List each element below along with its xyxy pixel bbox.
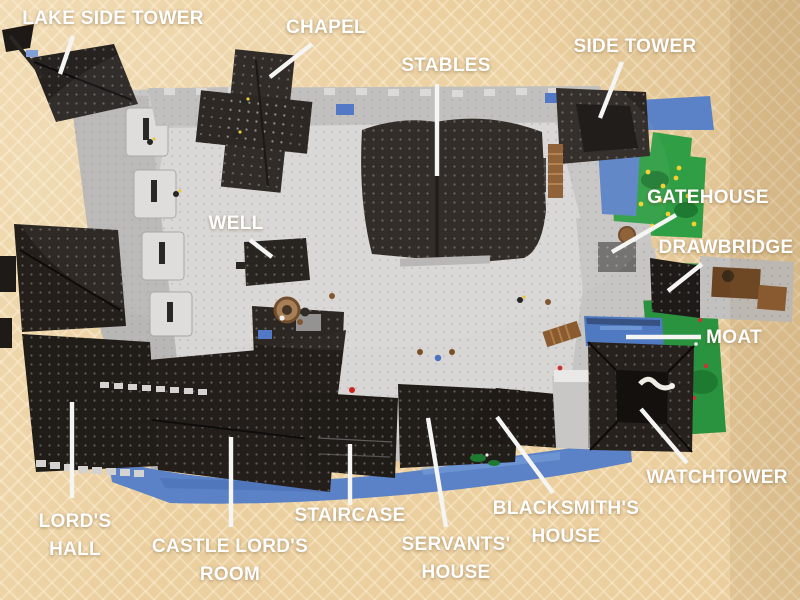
label-side-tower: SIDE TOWER <box>574 33 697 61</box>
label-blacksmiths-house: BLACKSMITH'S HOUSE <box>493 495 639 551</box>
drawbridge-plate <box>650 258 702 318</box>
flash-highlight <box>10 10 670 350</box>
left-edge-piece-2 <box>0 318 12 348</box>
label-stables: STABLES <box>401 52 490 80</box>
label-lake-side-tower: LAKE SIDE TOWER <box>22 5 204 33</box>
label-lords-hall: LORD'S HALL <box>39 508 112 564</box>
left-edge-piece <box>0 256 16 292</box>
label-castle-lords-room: CASTLE LORD'S ROOM <box>152 533 308 589</box>
label-well: WELL <box>208 210 263 238</box>
lords-hall-roof <box>22 334 158 472</box>
label-gatehouse: GATEHOUSE <box>647 184 769 212</box>
annotated-lego-castle-photo: LAKE SIDE TOWER CHAPEL STABLES SIDE TOWE… <box>0 0 800 600</box>
label-staircase: STAIRCASE <box>294 502 405 530</box>
label-drawbridge: DRAWBRIDGE <box>659 234 794 262</box>
label-moat: MOAT <box>706 324 762 352</box>
watchtower-roof <box>588 342 694 452</box>
label-watchtower: WATCHTOWER <box>646 464 788 492</box>
carpet-fold-shadow <box>730 0 800 600</box>
label-chapel: CHAPEL <box>286 14 366 42</box>
